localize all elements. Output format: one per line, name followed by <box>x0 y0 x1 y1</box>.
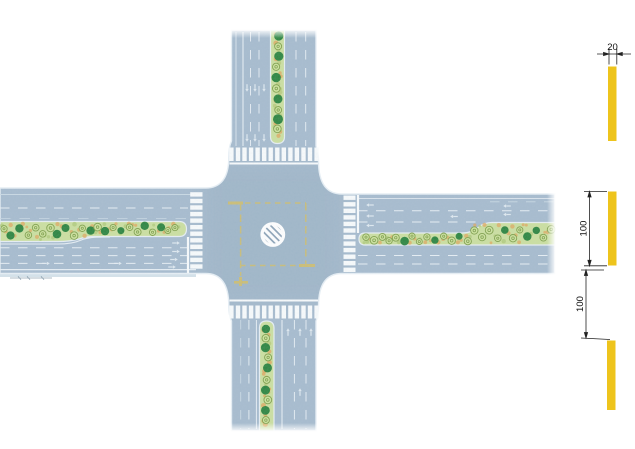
svg-text:100: 100 <box>575 296 586 312</box>
svg-text:20: 20 <box>607 42 618 53</box>
svg-text:100: 100 <box>579 221 590 237</box>
